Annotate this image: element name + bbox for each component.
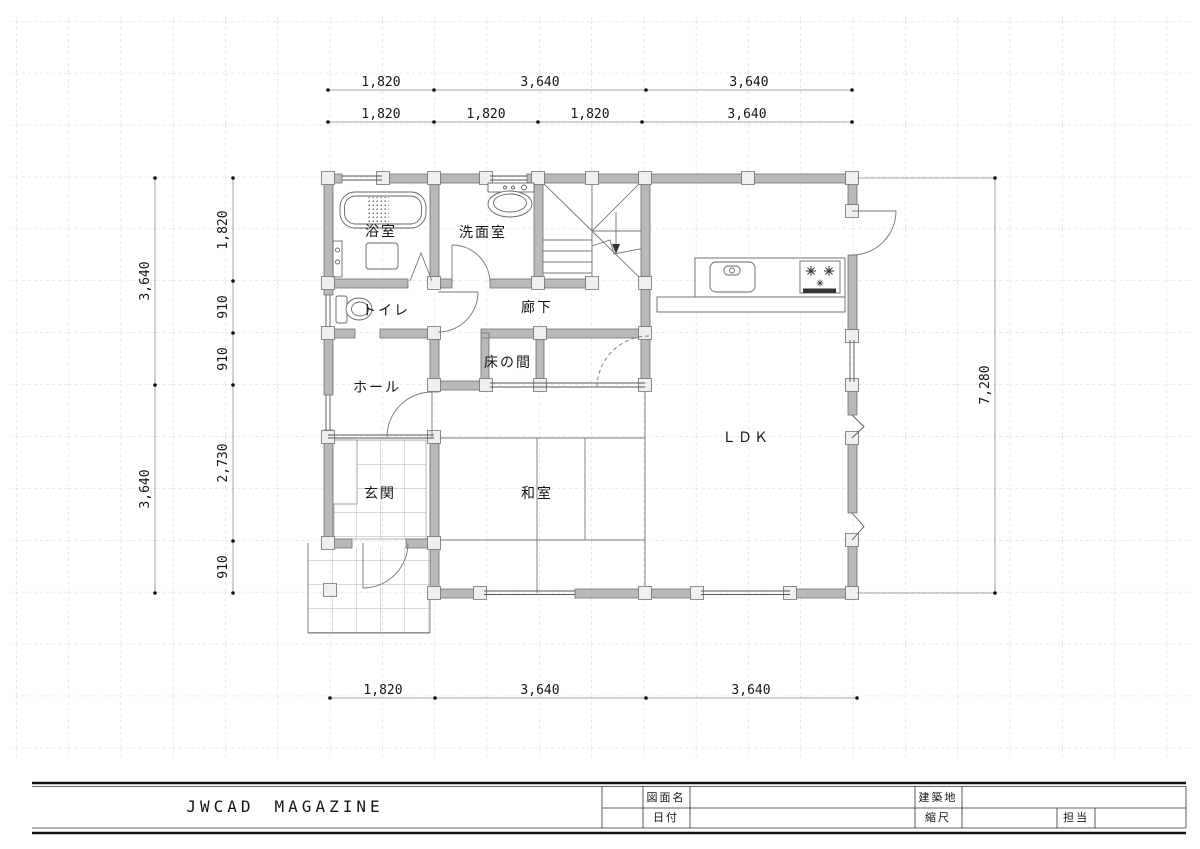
dim-left-inner-5: 910 xyxy=(216,555,231,578)
dim-left-inner-2: 910 xyxy=(216,295,231,318)
field-staff: 担当 xyxy=(1063,810,1089,824)
title-block: JWCAD MAGAZINE 図面名 建築地 日付 縮尺 担当 xyxy=(32,783,1186,833)
dim-left-outer-2: 3,640 xyxy=(138,469,153,508)
dim-bottom-2: 3,640 xyxy=(520,683,559,698)
dim-left-inner-1: 1,820 xyxy=(216,210,231,249)
field-drawing-name: 図面名 xyxy=(647,790,686,804)
field-building-site: 建築地 xyxy=(919,790,958,804)
dim-top1-1: 1,820 xyxy=(361,75,400,90)
dim-top2-3: 1,820 xyxy=(570,107,609,122)
publisher-name: JWCAD MAGAZINE xyxy=(186,797,383,816)
room-label-washroom: 洗面室 xyxy=(459,224,507,241)
room-label-corridor: 廊下 xyxy=(521,299,553,316)
dim-top2-4: 3,640 xyxy=(727,107,766,122)
dim-left-inner-4: 2,730 xyxy=(216,443,231,482)
cad-drawing-page: 浴室 洗面室 トイレ 廊下 床の間 ホール 玄関 和室 ＬＤＫ 1,820 3,… xyxy=(0,0,1200,849)
floor-plan-canvas: 浴室 洗面室 トイレ 廊下 床の間 ホール 玄関 和室 ＬＤＫ 1,820 3,… xyxy=(0,0,1200,849)
room-label-entrance: 玄関 xyxy=(364,485,396,502)
room-label-toilet: トイレ xyxy=(362,303,410,319)
dim-left-outer-1: 3,640 xyxy=(138,261,153,300)
dim-top1-3: 3,640 xyxy=(729,75,768,90)
field-date: 日付 xyxy=(653,811,679,824)
dim-top2-2: 1,820 xyxy=(466,107,505,122)
dim-bottom-1: 1,820 xyxy=(363,683,402,698)
room-label-bath: 浴室 xyxy=(365,223,397,240)
room-label-tokonoma: 床の間 xyxy=(484,355,532,371)
washbasin xyxy=(488,183,534,217)
dim-left-inner-3: 910 xyxy=(216,347,231,370)
stove xyxy=(800,261,840,293)
dim-right-1: 7,280 xyxy=(978,365,993,404)
bathtub xyxy=(340,192,426,228)
dim-top1-2: 3,640 xyxy=(520,75,559,90)
reference-grid xyxy=(10,14,1192,758)
room-label-japanese-room: 和室 xyxy=(521,485,553,502)
dim-top2-1: 1,820 xyxy=(361,107,400,122)
field-scale: 縮尺 xyxy=(925,810,951,824)
room-label-hall: ホール xyxy=(353,380,401,396)
dim-bottom-3: 3,640 xyxy=(731,683,770,698)
room-label-ldk: ＬＤＫ xyxy=(722,430,770,446)
